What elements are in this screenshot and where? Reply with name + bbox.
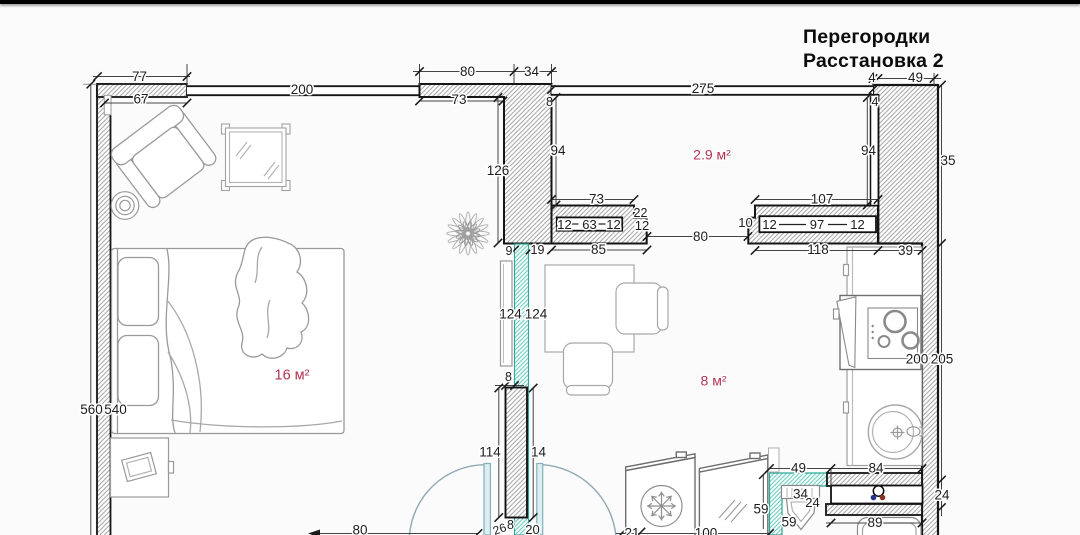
svg-text:49: 49 [791, 461, 806, 476]
svg-text:200: 200 [291, 82, 314, 97]
svg-text:39: 39 [898, 243, 913, 258]
svg-text:80: 80 [460, 64, 475, 79]
svg-text:89: 89 [867, 515, 882, 530]
svg-text:124: 124 [499, 307, 522, 322]
svg-text:97: 97 [810, 217, 824, 232]
svg-text:8: 8 [505, 370, 512, 384]
svg-text:12: 12 [606, 217, 620, 232]
svg-text:275: 275 [692, 81, 715, 96]
svg-text:19: 19 [531, 243, 545, 257]
svg-text:9: 9 [506, 244, 513, 258]
svg-text:20: 20 [525, 522, 539, 535]
svg-text:24: 24 [805, 495, 819, 510]
svg-text:35: 35 [940, 153, 955, 168]
svg-text:4: 4 [872, 95, 879, 109]
svg-text:85: 85 [591, 242, 606, 257]
svg-text:16 м²: 16 м² [275, 368, 310, 384]
svg-text:59: 59 [781, 515, 796, 530]
svg-text:2.9 м²: 2.9 м² [693, 147, 731, 163]
svg-text:94: 94 [550, 143, 566, 158]
svg-text:14: 14 [531, 445, 547, 460]
svg-text:100: 100 [695, 526, 718, 535]
svg-text:114: 114 [479, 445, 501, 460]
svg-text:21: 21 [624, 526, 639, 535]
svg-text:59: 59 [753, 502, 768, 517]
svg-text:94: 94 [861, 143, 877, 158]
svg-text:63: 63 [582, 217, 596, 232]
svg-text:80: 80 [693, 229, 708, 244]
svg-text:12: 12 [635, 218, 649, 233]
svg-text:24: 24 [934, 488, 950, 503]
svg-text:73: 73 [451, 92, 466, 107]
svg-text:34: 34 [524, 64, 540, 79]
svg-text:10: 10 [738, 215, 752, 230]
svg-text:73: 73 [589, 192, 604, 207]
svg-text:12: 12 [762, 217, 776, 232]
svg-text:200: 200 [906, 352, 929, 367]
svg-text:205: 205 [931, 352, 954, 367]
svg-text:12: 12 [557, 217, 571, 232]
svg-text:8: 8 [507, 518, 514, 532]
svg-text:49: 49 [908, 70, 923, 85]
svg-text:8: 8 [546, 95, 553, 109]
svg-text:4: 4 [868, 70, 876, 85]
svg-text:12: 12 [850, 217, 864, 232]
svg-text:107: 107 [811, 192, 834, 207]
svg-text:560: 560 [80, 402, 103, 417]
svg-text:124: 124 [525, 307, 548, 322]
svg-text:126: 126 [487, 163, 510, 178]
svg-text:118: 118 [807, 242, 829, 257]
svg-text:77: 77 [132, 69, 147, 84]
svg-text:84: 84 [868, 461, 884, 476]
svg-text:540: 540 [104, 402, 127, 417]
svg-text:8 м²: 8 м² [701, 373, 727, 389]
svg-text:80: 80 [352, 523, 367, 535]
svg-text:67: 67 [133, 92, 148, 107]
